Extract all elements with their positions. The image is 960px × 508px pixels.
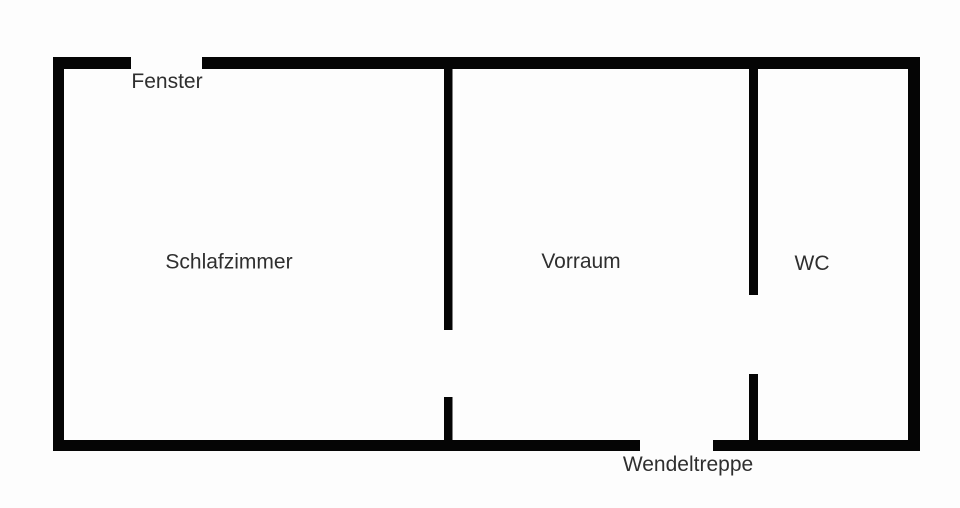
svg-text:Wendeltreppe: Wendeltreppe [623, 453, 753, 476]
svg-text:Fenster: Fenster [131, 70, 202, 93]
svg-text:Schlafzimmer: Schlafzimmer [165, 251, 292, 274]
svg-text:Vorraum: Vorraum [541, 250, 620, 273]
svg-text:WC: WC [795, 252, 830, 275]
